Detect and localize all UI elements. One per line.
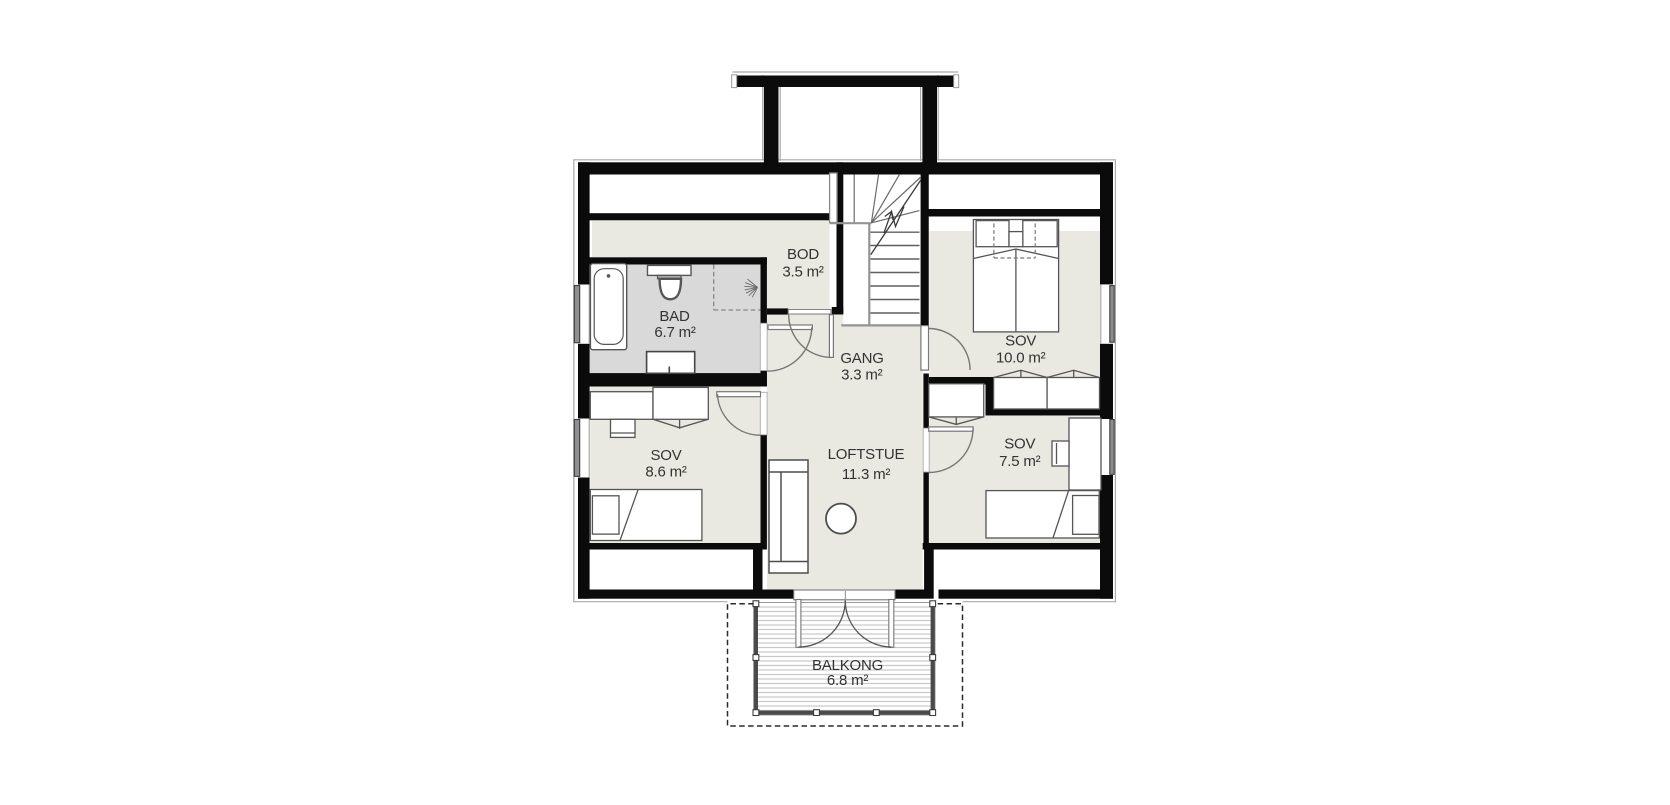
svg-text:11.3 m²: 11.3 m² — [842, 466, 891, 483]
svg-text:GANG: GANG — [840, 350, 883, 367]
svg-text:3.5 m²: 3.5 m² — [782, 264, 824, 281]
svg-text:8.6 m²: 8.6 m² — [645, 464, 687, 481]
svg-text:LOFTSTUE: LOFTSTUE — [828, 446, 905, 463]
svg-text:SOV: SOV — [650, 447, 681, 464]
svg-text:6.8 m²: 6.8 m² — [827, 672, 869, 689]
svg-text:SOV: SOV — [1004, 436, 1035, 453]
svg-text:10.0 m²: 10.0 m² — [996, 350, 1046, 367]
svg-text:3.3 m²: 3.3 m² — [841, 366, 883, 383]
svg-text:6.7 m²: 6.7 m² — [654, 324, 696, 341]
svg-text:BOD: BOD — [787, 246, 819, 263]
svg-text:BAD: BAD — [659, 308, 690, 325]
svg-text:SOV: SOV — [1005, 333, 1036, 350]
svg-text:7.5 m²: 7.5 m² — [999, 453, 1041, 470]
